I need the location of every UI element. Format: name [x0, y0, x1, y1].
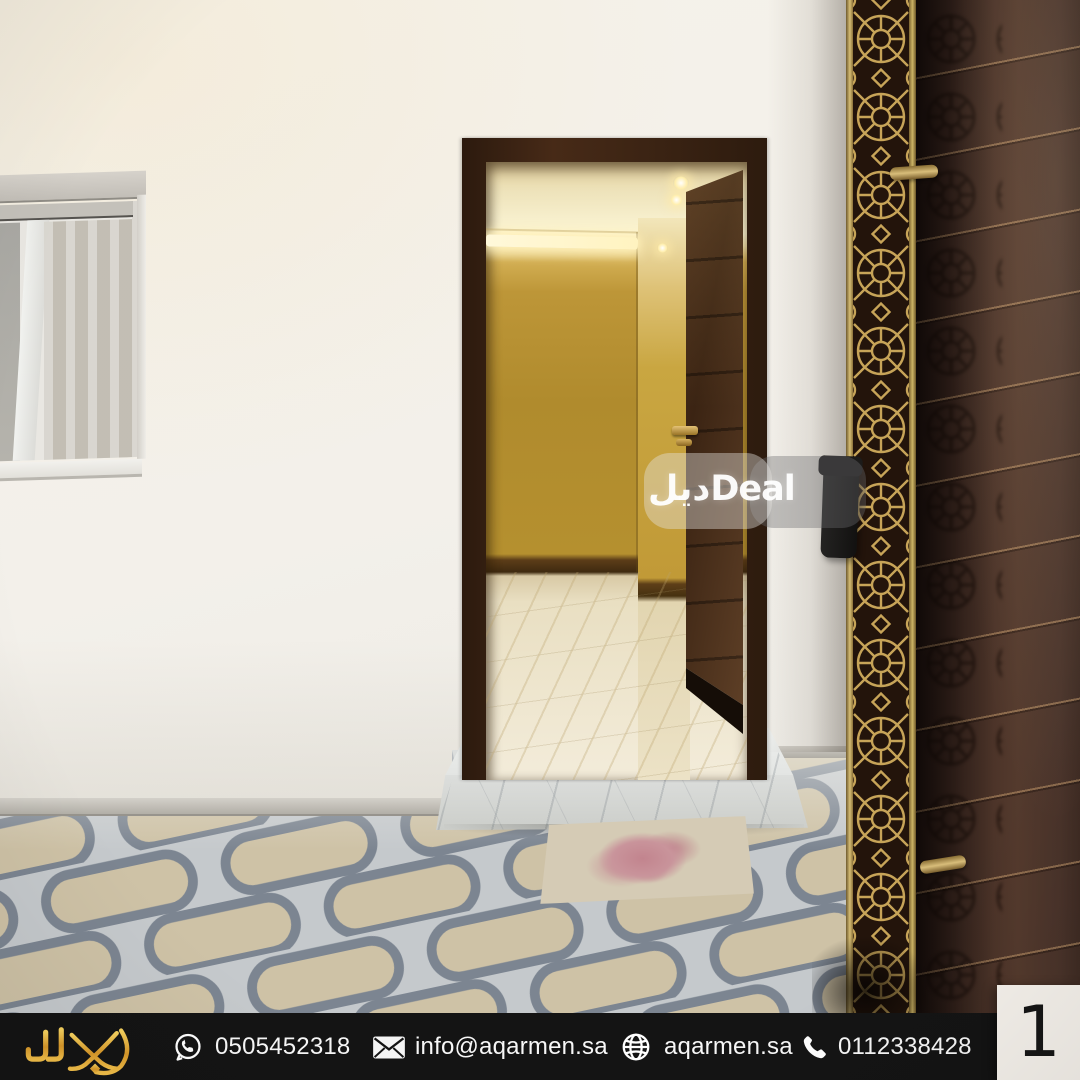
page-number: 1 [997, 991, 1080, 1073]
ceiling-recess-edge [486, 228, 638, 233]
interior-wall-corner [636, 232, 638, 572]
lattice-brass-frame [909, 0, 916, 1013]
email-icon [371, 1035, 407, 1060]
footer-contact-bar: 0505452318 info@aqarmen.sa aqarmen.sa 01… [0, 1013, 1080, 1080]
ceiling-downlight [673, 176, 689, 190]
phone-icon [800, 1032, 830, 1062]
door-handle [672, 426, 698, 435]
window [0, 171, 146, 520]
email-address: info@aqarmen.sa [415, 1033, 608, 1061]
ceiling-downlight [657, 243, 668, 253]
pink-rose-motif [556, 820, 736, 900]
phone-number: 0112338428 [838, 1033, 972, 1061]
window-top-rail [0, 201, 133, 221]
watermark-text: ديلDeal [648, 469, 770, 509]
brand-logo [18, 1021, 134, 1073]
whatsapp-icon [172, 1031, 204, 1063]
wall-shadow-near-door [767, 0, 846, 752]
window-jamb [137, 195, 146, 459]
window-glass-right [44, 219, 133, 460]
watermark: ديلDeal [644, 453, 866, 531]
website-url: aqarmen.sa [664, 1033, 793, 1061]
whatsapp-number: 0505452318 [215, 1033, 350, 1061]
rose-mat-tile [536, 816, 754, 904]
window-sill [0, 459, 142, 482]
globe-icon [620, 1031, 652, 1063]
window-lintel [0, 171, 146, 204]
wall-shade [0, 640, 460, 810]
real-estate-photo-card: ديلDeal 05054 [0, 0, 1080, 1080]
door-base-shadow [812, 935, 932, 1015]
window-frame [0, 201, 137, 461]
ceiling-downlight [670, 194, 683, 206]
wall-baseboard-left [0, 798, 458, 816]
cove-light [486, 234, 638, 249]
door-lock [676, 439, 692, 446]
page-number-box: 1 [997, 985, 1080, 1080]
